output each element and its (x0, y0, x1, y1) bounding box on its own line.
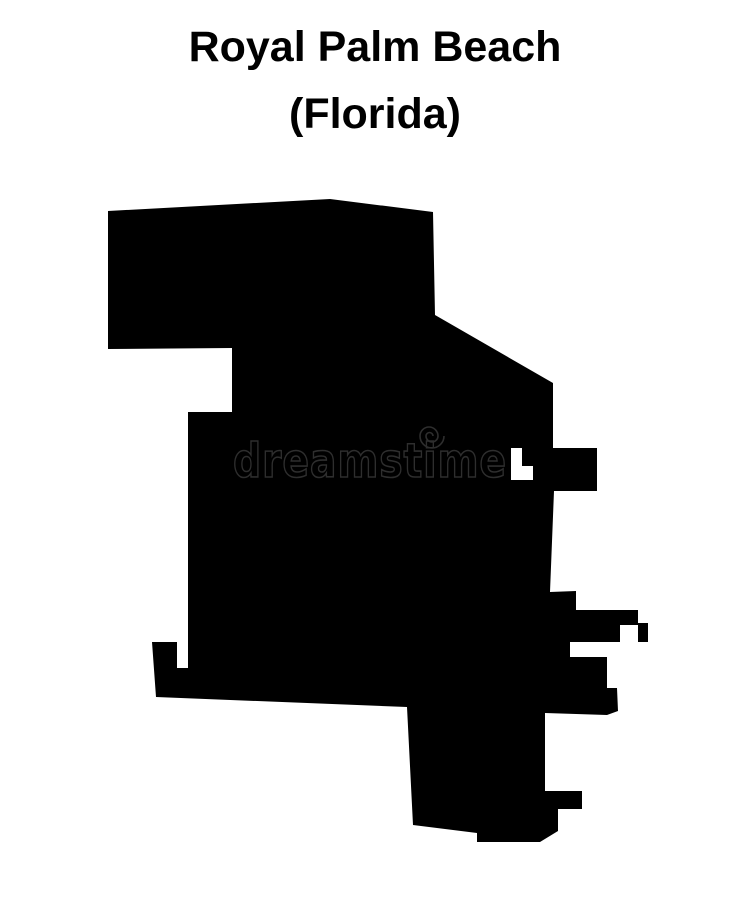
map-silhouette-canvas: dreamstime (0, 0, 750, 900)
dreamstime-watermark: dreamstime (233, 427, 507, 489)
city-boundary-silhouette (108, 199, 648, 842)
stock-image-canvas: Royal Palm Beach (Florida) dreamstime (0, 0, 750, 900)
watermark-text: dreamstime (233, 434, 507, 489)
